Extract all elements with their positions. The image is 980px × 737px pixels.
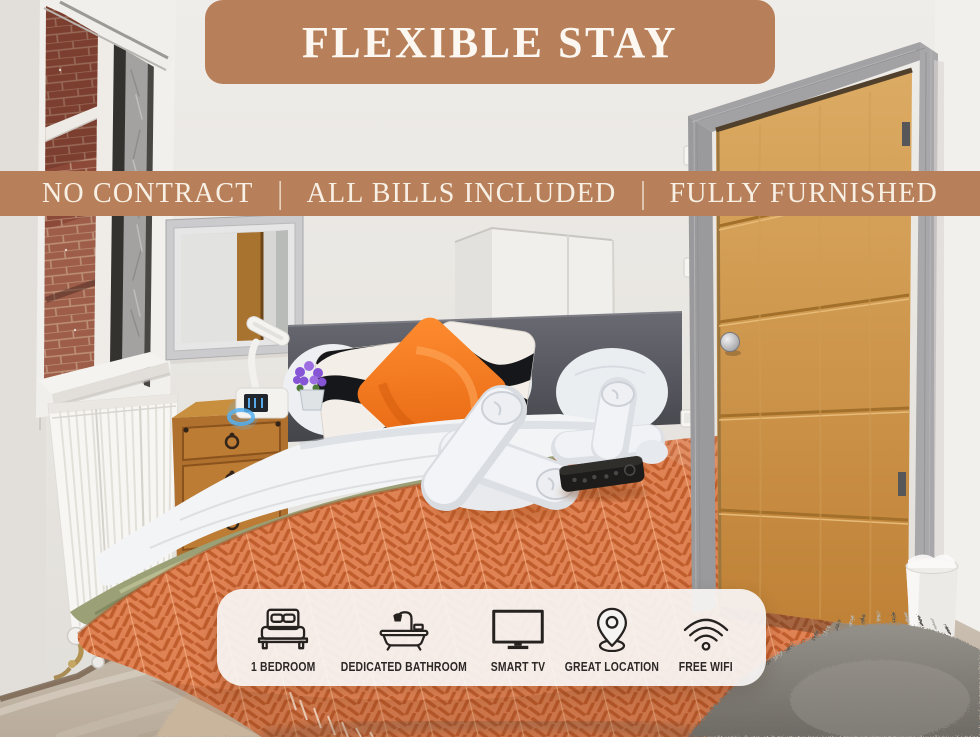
feature-smart-tv: SMART TV: [484, 602, 552, 674]
ribbon-item-no-contract: NO CONTRACT: [42, 178, 254, 210]
feature-location: GREAT LOCATION: [553, 602, 671, 674]
banner-title: FLEXIBLE STAY: [302, 17, 678, 68]
feature-label: 1 BEDROOM: [251, 659, 315, 674]
feature-label: DEDICATED BATHROOM: [341, 659, 467, 674]
location-pin-icon: [588, 606, 636, 652]
tv-icon: [490, 606, 546, 652]
bathtub-icon: [376, 606, 432, 652]
bed-icon: [254, 606, 312, 652]
ribbon-item-all-bills: ALL BILLS INCLUDED: [307, 178, 617, 210]
feature-bedroom: 1 BEDROOM: [243, 602, 324, 674]
ribbon-item-furnished: FULLY FURNISHED: [669, 178, 938, 210]
features-pill: 1 BEDROOM DEDICATED BATHROOM SMART TV GR…: [217, 589, 766, 686]
ribbon-separator: |: [278, 176, 283, 211]
feature-wifi: FREE WIFI: [672, 602, 740, 674]
feature-label: GREAT LOCATION: [565, 659, 659, 674]
top-banner: FLEXIBLE STAY: [205, 0, 775, 84]
door-slab: [716, 70, 912, 632]
info-ribbon: NO CONTRACT | ALL BILLS INCLUDED | FULLY…: [0, 171, 980, 216]
ribbon-separator: |: [640, 176, 645, 211]
feature-label: FREE WIFI: [679, 659, 733, 674]
feature-bathroom: DEDICATED BATHROOM: [325, 602, 483, 674]
door: [688, 42, 944, 650]
property-flyer: FLEXIBLE STAY NO CONTRACT | ALL BILLS IN…: [0, 0, 980, 737]
wifi-icon: [679, 606, 733, 652]
feature-label: SMART TV: [491, 659, 545, 674]
